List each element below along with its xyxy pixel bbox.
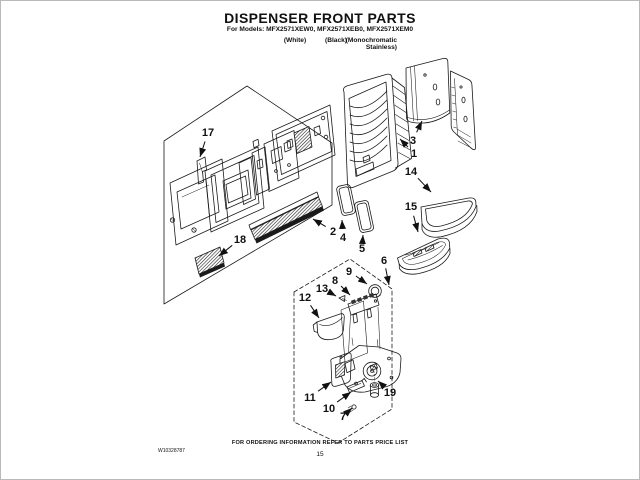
svg-text:2: 2 xyxy=(330,226,336,238)
callout-2: 2 xyxy=(313,219,336,238)
svg-text:12: 12 xyxy=(299,292,311,304)
svg-text:10: 10 xyxy=(323,403,335,415)
part-17-clip xyxy=(197,157,207,184)
svg-text:18: 18 xyxy=(234,234,246,246)
svg-text:1: 1 xyxy=(411,148,417,160)
control-panel-stack xyxy=(170,105,335,245)
svg-text:11: 11 xyxy=(304,392,316,404)
part-15-grille-tray xyxy=(398,238,451,274)
part-1-dispenser-frame xyxy=(343,74,411,188)
callout-18: 18 xyxy=(219,234,246,256)
svg-text:15: 15 xyxy=(405,201,417,213)
callout-8: 8 xyxy=(332,275,350,295)
callout-6: 6 xyxy=(381,255,389,285)
page-number: 15 xyxy=(1,451,639,458)
callout-10: 10 xyxy=(323,392,351,415)
part-3-curved-panel xyxy=(406,58,476,149)
parts-catalog-page: DISPENSER FRONT PARTS For Models: MFX257… xyxy=(0,0,640,480)
parts-diagram: 171824531141569813121110719 xyxy=(1,1,640,480)
svg-text:19: 19 xyxy=(384,387,396,399)
part-2-grille-vent xyxy=(249,192,324,244)
callout-7: 7 xyxy=(340,408,352,423)
callout-3: 3 xyxy=(410,121,422,147)
doc-number: W10328787 xyxy=(158,448,185,454)
part-14-drip-tray xyxy=(421,198,477,237)
svg-text:4: 4 xyxy=(340,232,347,244)
svg-text:6: 6 xyxy=(381,255,387,267)
callout-12: 12 xyxy=(299,292,319,318)
callout-4: 4 xyxy=(340,220,347,244)
svg-text:9: 9 xyxy=(346,266,352,278)
svg-text:7: 7 xyxy=(340,411,346,423)
svg-text:14: 14 xyxy=(405,166,418,178)
callout-5: 5 xyxy=(359,235,365,255)
svg-text:3: 3 xyxy=(410,135,416,147)
callout-15: 15 xyxy=(405,201,418,232)
callout-17: 17 xyxy=(200,127,214,157)
exploded-plane-outline xyxy=(164,86,332,304)
part-5-pad xyxy=(354,200,374,233)
callout-19: 19 xyxy=(378,381,396,399)
callout-11: 11 xyxy=(304,382,331,404)
svg-text:13: 13 xyxy=(316,283,328,295)
callout-14: 14 xyxy=(405,166,431,192)
svg-text:8: 8 xyxy=(332,275,338,287)
part-18-grille-vent xyxy=(195,247,225,278)
part-callouts: 171824531141569813121110719 xyxy=(200,121,431,423)
part-4-pad xyxy=(336,184,356,216)
svg-text:17: 17 xyxy=(202,127,214,139)
ordering-note: FOR ORDERING INFORMATION REFER TO PARTS … xyxy=(1,440,639,446)
svg-text:5: 5 xyxy=(359,243,365,255)
